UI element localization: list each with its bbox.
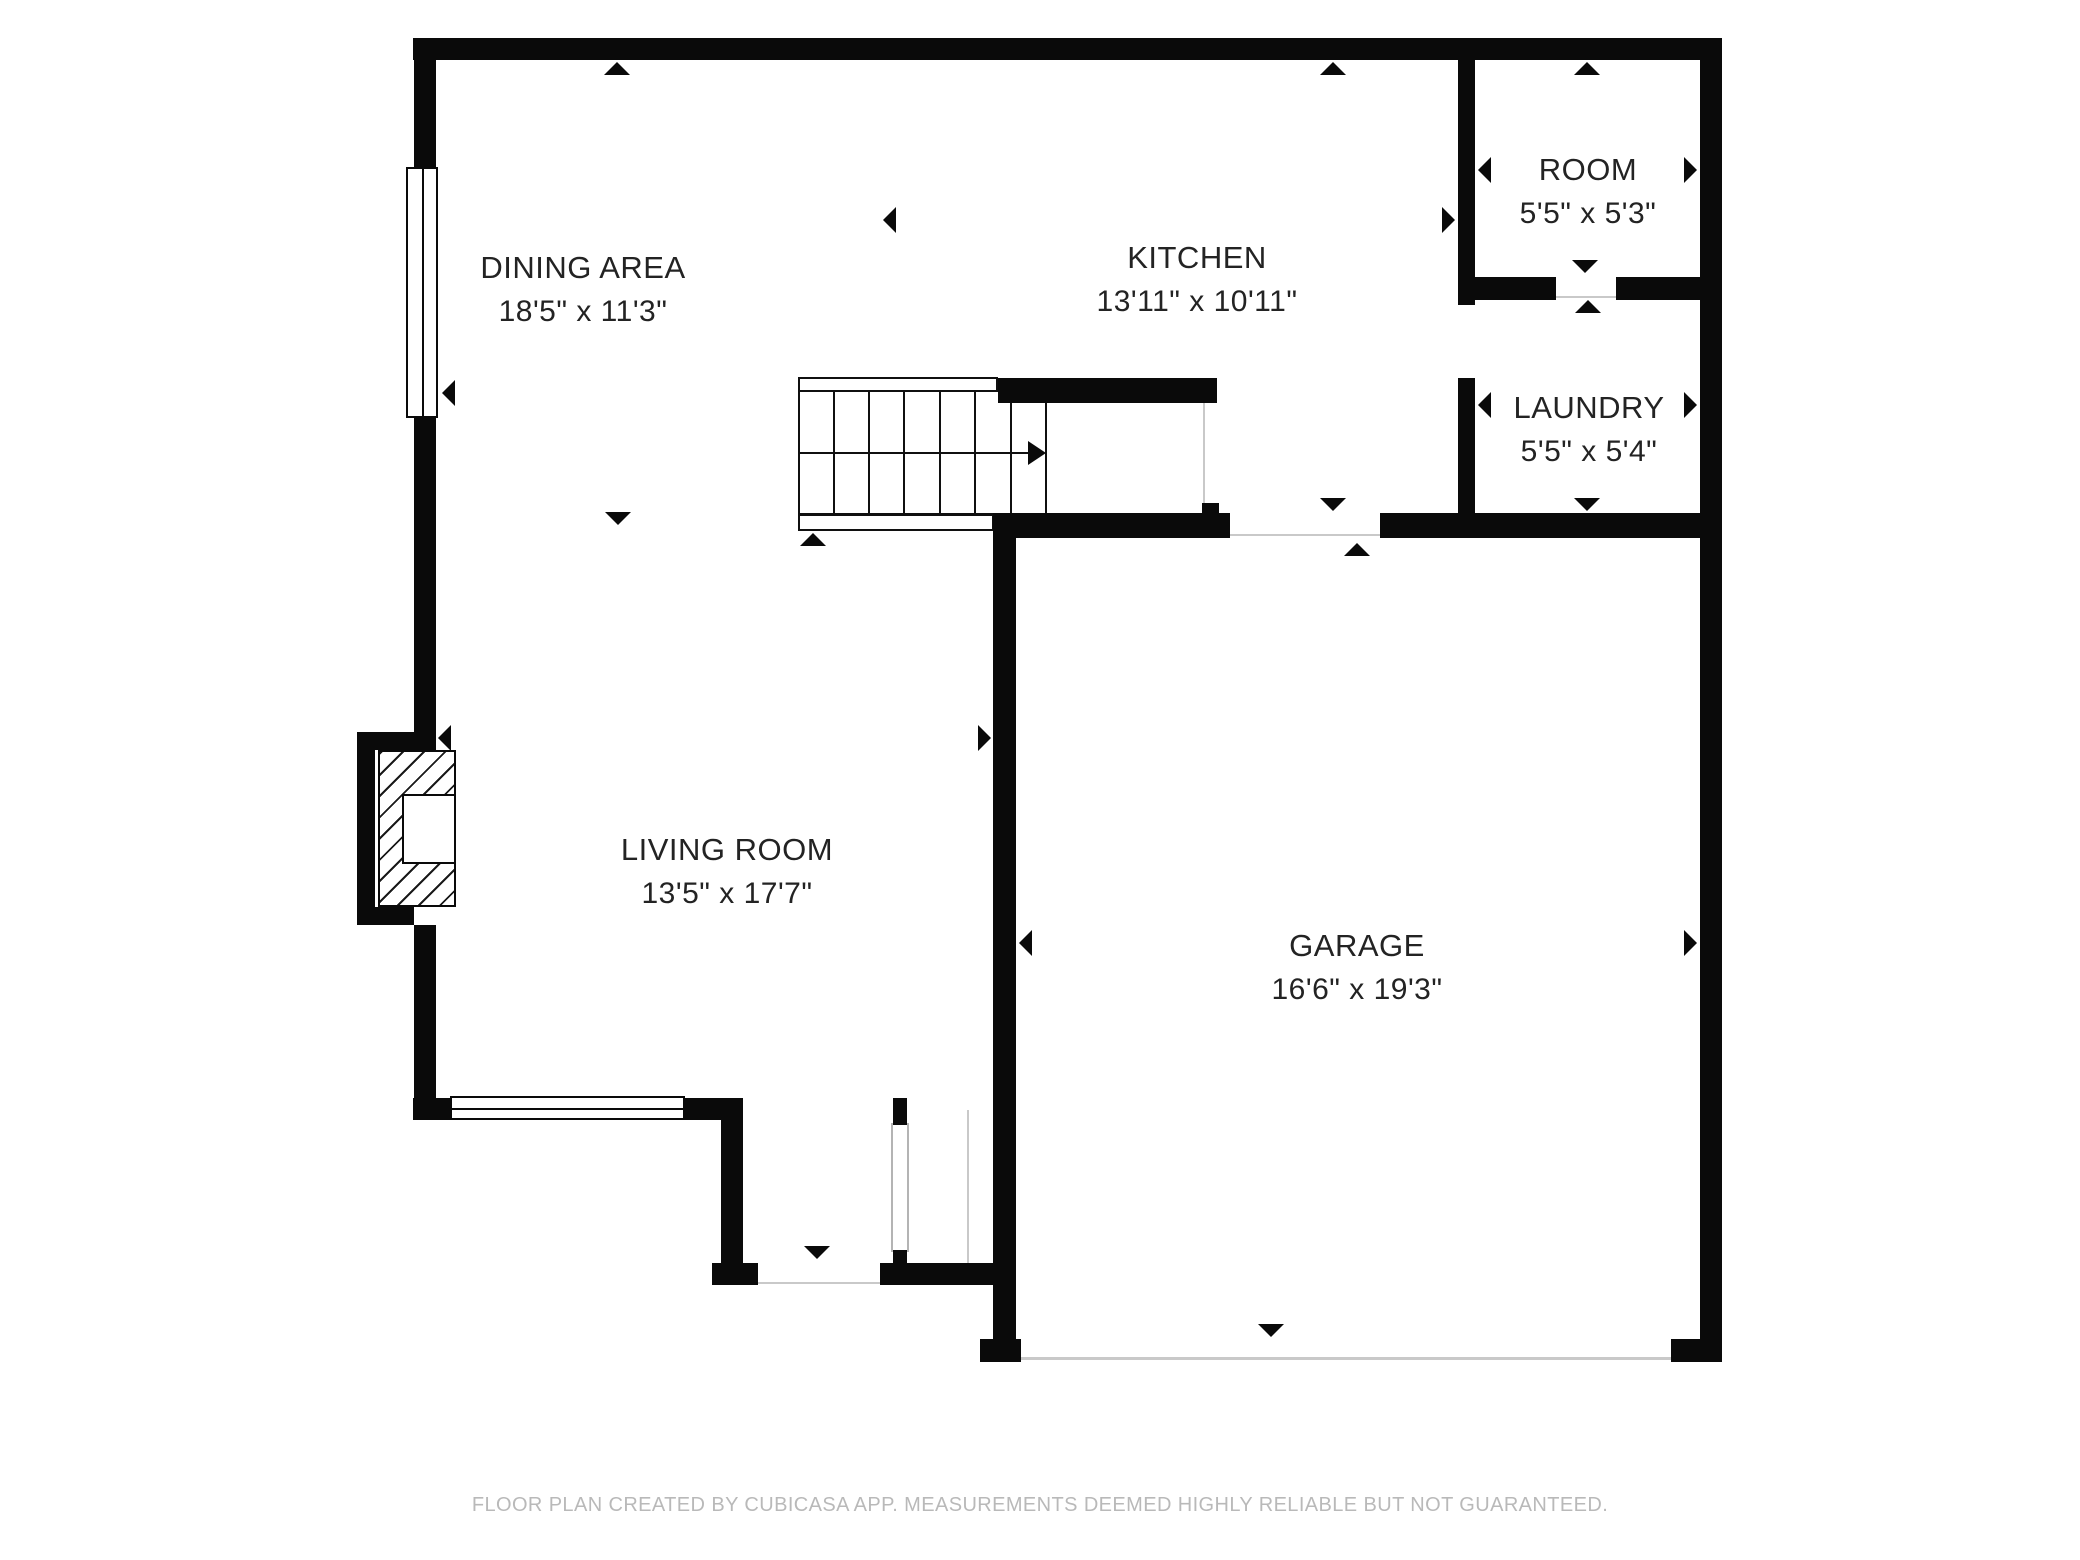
room-name: LIVING ROOM — [621, 828, 833, 872]
thin-line — [1203, 392, 1205, 511]
wall — [1380, 513, 1700, 538]
down-triangle-marker — [1258, 1324, 1284, 1337]
room-name: KITCHEN — [1097, 236, 1298, 280]
wall — [1458, 60, 1475, 305]
wall — [413, 1098, 452, 1120]
wall — [893, 1098, 907, 1125]
room-dimensions: 18'5" x 11'3" — [480, 290, 685, 334]
wall — [721, 1118, 743, 1265]
down-triangle-marker — [605, 512, 631, 525]
left-triangle-marker — [442, 380, 455, 406]
stair-direction-arrow — [1028, 441, 1046, 465]
wall — [893, 1250, 907, 1285]
left-triangle-marker — [1478, 392, 1491, 418]
right-triangle-marker — [1684, 157, 1697, 183]
window-pane-line — [452, 1108, 683, 1110]
right-triangle-marker — [1684, 930, 1697, 956]
room-dimensions: 13'5" x 17'7" — [621, 872, 833, 916]
wall — [1616, 277, 1700, 300]
stair-top-rail — [798, 377, 998, 392]
room-dimensions: 5'5" x 5'4" — [1513, 430, 1664, 474]
fireplace-surround — [357, 732, 414, 750]
room-dimensions: 5'5" x 5'3" — [1520, 192, 1657, 236]
thin-line — [757, 1282, 880, 1284]
down-triangle-marker — [1320, 498, 1346, 511]
floor-plan: DINING AREA 18'5" x 11'3" KITCHEN 13'11"… — [0, 0, 2080, 1560]
room-dimensions: 13'11" x 10'11" — [1097, 280, 1298, 324]
window — [406, 167, 438, 418]
window-pane-line — [422, 169, 424, 416]
wall — [685, 1098, 743, 1120]
up-triangle-marker — [1320, 62, 1346, 75]
fireplace-surround — [357, 732, 375, 925]
room-name: GARAGE — [1271, 924, 1442, 968]
left-triangle-marker — [883, 207, 896, 233]
disclaimer-text: FLOOR PLAN CREATED BY CUBICASA APP. MEAS… — [472, 1492, 1608, 1518]
stair-direction-line — [798, 452, 1028, 454]
room-label-laundry: LAUNDRY 5'5" x 5'4" — [1513, 386, 1664, 474]
fireplace-firebox — [402, 794, 456, 864]
wall — [414, 60, 436, 167]
up-triangle-marker — [1575, 300, 1601, 313]
thin-line — [1021, 1357, 1671, 1360]
up-triangle-marker — [1574, 62, 1600, 75]
right-triangle-marker — [1442, 207, 1455, 233]
room-label-room: ROOM 5'5" x 5'3" — [1520, 148, 1657, 236]
wall — [414, 925, 436, 1098]
wall — [414, 418, 436, 750]
wall — [998, 378, 1217, 403]
wall — [1700, 38, 1722, 1362]
down-triangle-marker — [1572, 260, 1598, 273]
wall — [1202, 503, 1219, 515]
stair-bottom-rail — [798, 514, 994, 531]
wall — [413, 38, 1722, 60]
room-label-garage: GARAGE 16'6" x 19'3" — [1271, 924, 1442, 1012]
left-triangle-marker — [438, 725, 451, 751]
left-triangle-marker — [1478, 157, 1491, 183]
down-triangle-marker — [1574, 498, 1600, 511]
window — [450, 1096, 685, 1120]
up-triangle-marker — [604, 62, 630, 75]
left-triangle-marker — [1019, 930, 1032, 956]
up-triangle-marker — [800, 533, 826, 546]
right-triangle-marker — [1684, 392, 1697, 418]
room-label-living-room: LIVING ROOM 13'5" x 17'7" — [621, 828, 833, 916]
room-dimensions: 16'6" x 19'3" — [1271, 968, 1442, 1012]
thin-line — [1556, 296, 1616, 298]
up-triangle-marker — [1344, 543, 1370, 556]
thin-line — [1230, 534, 1380, 536]
room-name: DINING AREA — [480, 246, 685, 290]
window — [891, 1123, 909, 1252]
wall — [980, 1339, 1021, 1362]
wall — [712, 1263, 758, 1285]
wall — [993, 537, 1016, 1362]
wall — [1475, 277, 1556, 300]
wall — [993, 513, 1230, 538]
fireplace-surround — [357, 907, 414, 925]
down-triangle-marker — [804, 1246, 830, 1259]
wall — [1458, 378, 1475, 513]
room-name: ROOM — [1520, 148, 1657, 192]
room-name: LAUNDRY — [1513, 386, 1664, 430]
room-label-kitchen: KITCHEN 13'11" x 10'11" — [1097, 236, 1298, 324]
room-label-dining-area: DINING AREA 18'5" x 11'3" — [480, 246, 685, 334]
thin-line — [967, 1110, 969, 1263]
right-triangle-marker — [978, 725, 991, 751]
